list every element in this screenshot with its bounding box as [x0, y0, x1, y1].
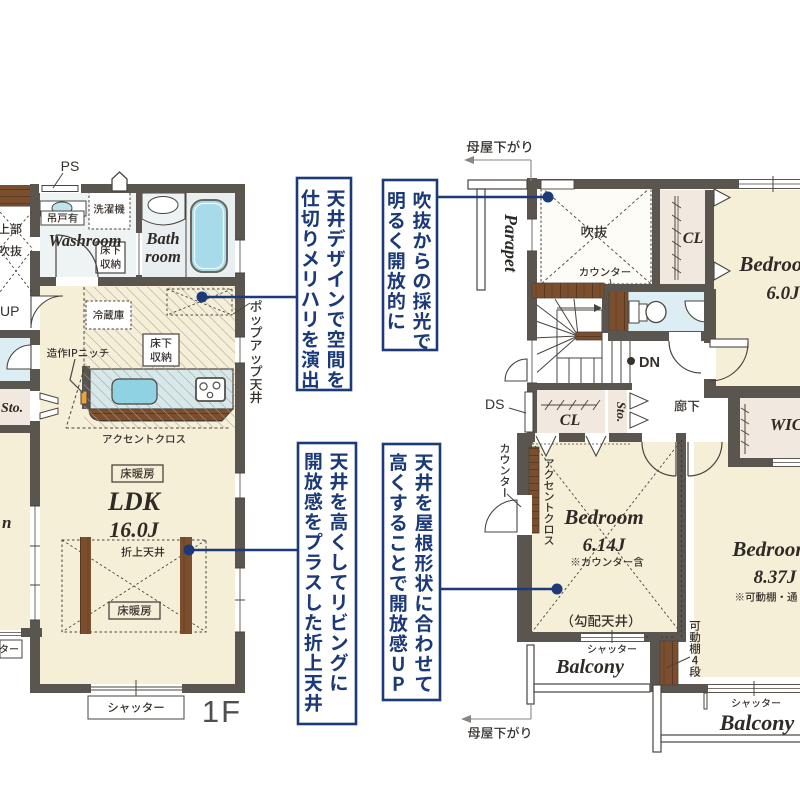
svg-text:CL: CL — [560, 412, 581, 429]
svg-text:WIC: WIC — [770, 415, 800, 434]
svg-text:DN: DN — [639, 355, 660, 371]
svg-text:Parapet: Parapet — [501, 213, 521, 273]
svg-text:Bedroom: Bedroom — [738, 252, 800, 276]
svg-text:UP: UP — [0, 303, 19, 319]
svg-text:LDK: LDK — [107, 487, 162, 516]
svg-text:CL: CL — [683, 230, 704, 247]
svg-text:room: room — [145, 247, 181, 266]
svg-text:Bath: Bath — [145, 229, 179, 248]
svg-text:8.37J: 8.37J — [754, 567, 797, 588]
svg-text:6.0J: 6.0J — [766, 283, 800, 304]
svg-text:Balcony: Balcony — [555, 656, 624, 678]
svg-text:PS: PS — [61, 158, 80, 174]
svg-text:Bedroom: Bedroom — [563, 505, 643, 529]
svg-text:1F: 1F — [202, 694, 242, 729]
svg-text:Bedroom: Bedroom — [731, 537, 800, 561]
svg-text:6.14J: 6.14J — [583, 535, 626, 556]
svg-text:16.0J: 16.0J — [109, 517, 160, 542]
svg-text:DS: DS — [485, 396, 504, 412]
svg-text:Sto.: Sto. — [1, 401, 23, 416]
svg-text:n: n — [2, 513, 11, 532]
svg-text:Sto.: Sto. — [614, 402, 629, 423]
svg-text:Balcony: Balcony — [719, 710, 795, 735]
